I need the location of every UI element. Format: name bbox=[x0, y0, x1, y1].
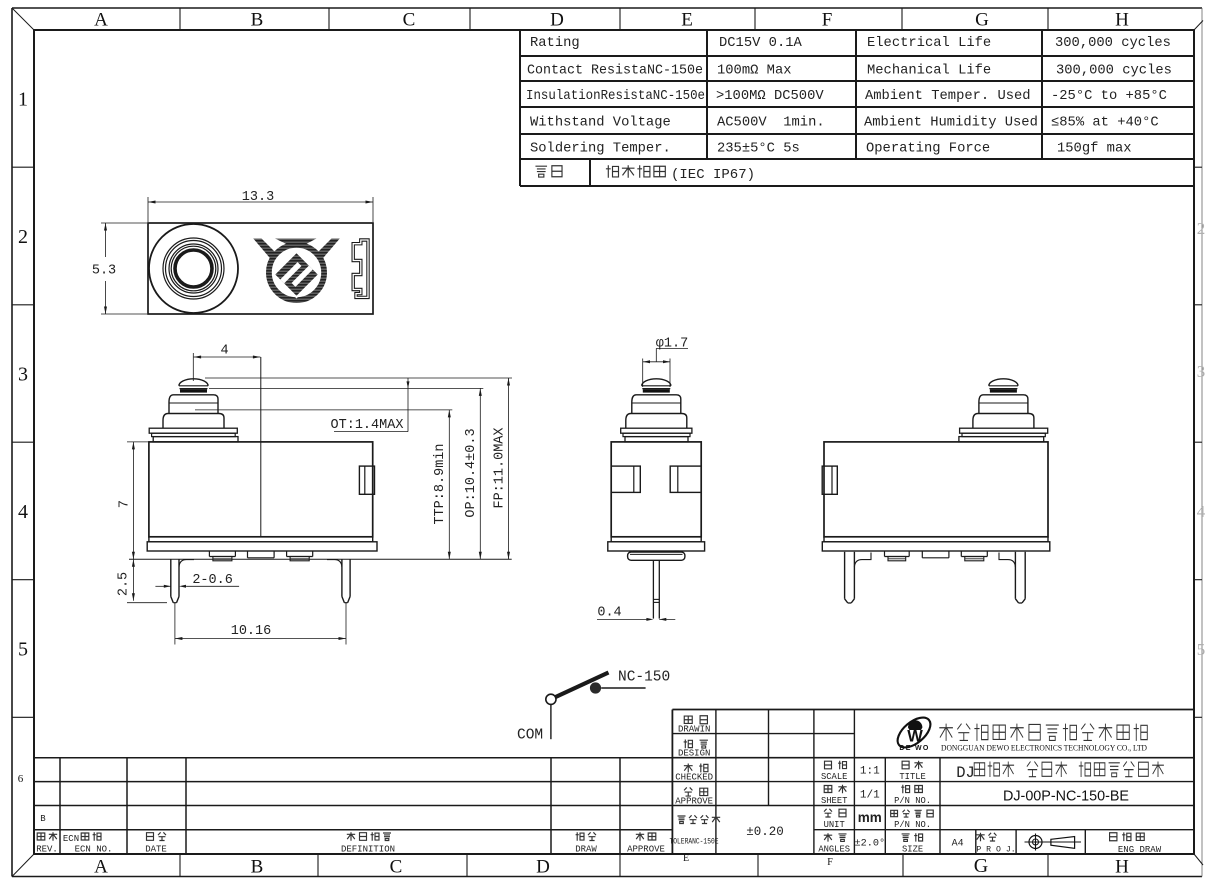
svg-text:UNIT: UNIT bbox=[824, 820, 845, 830]
svg-text:C: C bbox=[403, 10, 416, 31]
svg-text:6: 6 bbox=[18, 773, 24, 785]
svg-text:4: 4 bbox=[220, 344, 228, 359]
svg-text:300,000 cycles: 300,000 cycles bbox=[1056, 62, 1172, 78]
svg-text:150gf max: 150gf max bbox=[1057, 140, 1132, 156]
svg-text:Ambient Temper. Used: Ambient Temper. Used bbox=[865, 88, 1031, 104]
svg-text:C: C bbox=[390, 857, 403, 878]
svg-text:W: W bbox=[907, 728, 923, 746]
svg-text:Soldering Temper.: Soldering Temper. bbox=[530, 140, 671, 156]
svg-text:TITLE: TITLE bbox=[899, 772, 925, 782]
svg-text:G: G bbox=[974, 855, 988, 877]
svg-text:3: 3 bbox=[18, 364, 28, 386]
svg-text:>100MΩ DC500V: >100MΩ DC500V bbox=[716, 89, 824, 104]
svg-text:D: D bbox=[536, 857, 550, 878]
svg-text:2: 2 bbox=[18, 226, 28, 248]
svg-text:mm: mm bbox=[858, 810, 882, 825]
svg-text:7: 7 bbox=[118, 500, 133, 508]
svg-text:4: 4 bbox=[1197, 502, 1206, 521]
svg-text:OT:1.4MAX: OT:1.4MAX bbox=[331, 418, 404, 433]
svg-text:H: H bbox=[1115, 10, 1129, 31]
svg-text:F: F bbox=[827, 857, 833, 868]
svg-text:APPROVE: APPROVE bbox=[675, 797, 713, 807]
svg-text:DRAWIN: DRAWIN bbox=[678, 725, 710, 735]
svg-text:B: B bbox=[251, 857, 264, 878]
svg-text:0.4: 0.4 bbox=[597, 606, 621, 621]
svg-text:CHECKED: CHECKED bbox=[675, 773, 713, 783]
svg-text:2: 2 bbox=[1197, 219, 1206, 238]
svg-text:DEFINITION: DEFINITION bbox=[341, 845, 395, 855]
svg-text:ECN: ECN bbox=[63, 834, 79, 844]
svg-text:DJ-00P-NC-150-BE: DJ-00P-NC-150-BE bbox=[1003, 789, 1129, 805]
svg-text:10.16: 10.16 bbox=[231, 624, 272, 639]
svg-text:DE WO: DE WO bbox=[899, 745, 929, 752]
svg-text:Withstand Voltage: Withstand Voltage bbox=[530, 114, 671, 130]
svg-text:DONGGUAN DEWO ELECTRONICS TECH: DONGGUAN DEWO ELECTRONICS TECHNOLOGY CO.… bbox=[941, 744, 1147, 753]
svg-text:1: 1 bbox=[18, 89, 28, 111]
svg-text:TTP:8.9min: TTP:8.9min bbox=[433, 443, 448, 524]
svg-text:235±5°C 5s: 235±5°C 5s bbox=[717, 141, 800, 156]
svg-text:E: E bbox=[681, 10, 693, 31]
svg-text:DC15V 0.1A: DC15V 0.1A bbox=[719, 36, 803, 51]
svg-text:COM: COM bbox=[517, 728, 543, 744]
svg-text:Contact ResistaNC-150e: Contact ResistaNC-150e bbox=[527, 62, 703, 78]
svg-text:P/N NO.: P/N NO. bbox=[894, 820, 931, 830]
svg-text:DATE: DATE bbox=[145, 845, 167, 855]
svg-text:G: G bbox=[975, 10, 989, 31]
svg-text:B: B bbox=[40, 814, 46, 824]
svg-text:P/N NO.: P/N NO. bbox=[894, 796, 931, 806]
svg-text:AC500V 1min.: AC500V 1min. bbox=[717, 114, 825, 130]
svg-text:NC-150: NC-150 bbox=[618, 670, 670, 686]
svg-text:Ambient Humidity Used: Ambient Humidity Used bbox=[864, 114, 1038, 130]
svg-text:DESIGN: DESIGN bbox=[678, 749, 710, 759]
svg-text:ECN NO.: ECN NO. bbox=[75, 845, 113, 855]
svg-text:OP:10.4±0.3: OP:10.4±0.3 bbox=[464, 428, 479, 517]
svg-text:±0.20: ±0.20 bbox=[746, 825, 784, 839]
svg-text:DJ: DJ bbox=[956, 764, 975, 782]
svg-text:2.5: 2.5 bbox=[117, 572, 132, 596]
svg-text:Mechanical Life: Mechanical Life bbox=[867, 62, 991, 78]
svg-text:InsulationResistaNC-150e: InsulationResistaNC-150e bbox=[526, 88, 705, 104]
svg-text:P R O J.: P R O J. bbox=[976, 846, 1015, 855]
svg-text:ENG DRAW: ENG DRAW bbox=[1118, 845, 1162, 855]
svg-text:(IEC IP67): (IEC IP67) bbox=[671, 167, 755, 183]
svg-text:≤85% at +40°C: ≤85% at +40°C bbox=[1051, 115, 1159, 130]
svg-text:B: B bbox=[251, 10, 264, 31]
svg-text:F: F bbox=[822, 10, 833, 31]
svg-text:A: A bbox=[94, 857, 108, 878]
svg-text:H: H bbox=[1115, 857, 1129, 878]
svg-text:2-0.6: 2-0.6 bbox=[192, 573, 233, 588]
svg-text:5.3: 5.3 bbox=[92, 264, 116, 279]
svg-text:A4: A4 bbox=[952, 839, 964, 850]
svg-text:13.3: 13.3 bbox=[242, 190, 274, 205]
svg-text:ANGLES: ANGLES bbox=[818, 845, 850, 855]
svg-text:1/1: 1/1 bbox=[860, 790, 880, 802]
svg-text:APPROVE: APPROVE bbox=[627, 845, 665, 855]
svg-text:Rating: Rating bbox=[530, 35, 580, 51]
svg-text:E: E bbox=[683, 853, 689, 864]
svg-text:FP:11.0MAX: FP:11.0MAX bbox=[493, 427, 508, 508]
svg-text:3: 3 bbox=[1197, 362, 1206, 381]
svg-text:4: 4 bbox=[18, 501, 28, 523]
svg-text:Operating Force: Operating Force bbox=[866, 140, 990, 156]
svg-text:DRAW: DRAW bbox=[575, 845, 597, 855]
svg-text:TOLERANC-150E: TOLERANC-150E bbox=[670, 838, 719, 847]
svg-text:5: 5 bbox=[18, 639, 28, 661]
svg-text:±2.0°: ±2.0° bbox=[855, 838, 886, 850]
svg-text:SIZE: SIZE bbox=[902, 845, 923, 855]
svg-text:D: D bbox=[550, 10, 564, 31]
svg-text:SHEET: SHEET bbox=[821, 796, 847, 806]
svg-text:-25°C to +85°C: -25°C to +85°C bbox=[1051, 89, 1167, 104]
svg-text:SCALE: SCALE bbox=[821, 772, 847, 782]
svg-text:1:1: 1:1 bbox=[860, 766, 880, 778]
svg-text:100mΩ Max: 100mΩ Max bbox=[717, 63, 792, 78]
svg-text:REV.: REV. bbox=[36, 845, 58, 855]
svg-text:5: 5 bbox=[1197, 640, 1206, 659]
svg-text:φ1.7: φ1.7 bbox=[656, 337, 688, 352]
svg-text:Electrical Life: Electrical Life bbox=[867, 35, 991, 51]
svg-text:300,000 cycles: 300,000 cycles bbox=[1055, 35, 1171, 51]
svg-text:A: A bbox=[94, 10, 108, 31]
